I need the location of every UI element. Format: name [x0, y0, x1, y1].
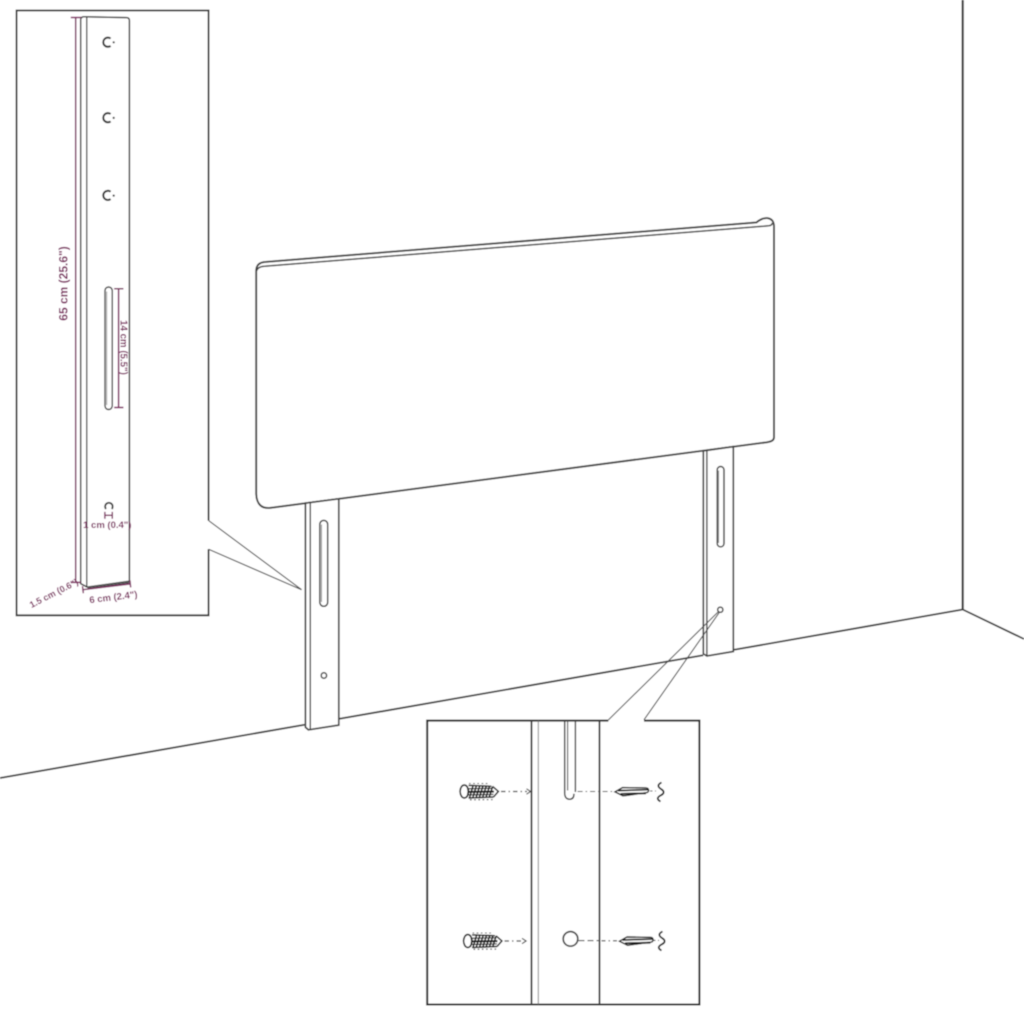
svg-text:1 cm (0.4"): 1 cm (0.4"): [83, 520, 131, 531]
svg-text:65 cm (25.6"): 65 cm (25.6"): [56, 246, 70, 320]
svg-text:14 cm (5.5"): 14 cm (5.5"): [117, 320, 128, 375]
